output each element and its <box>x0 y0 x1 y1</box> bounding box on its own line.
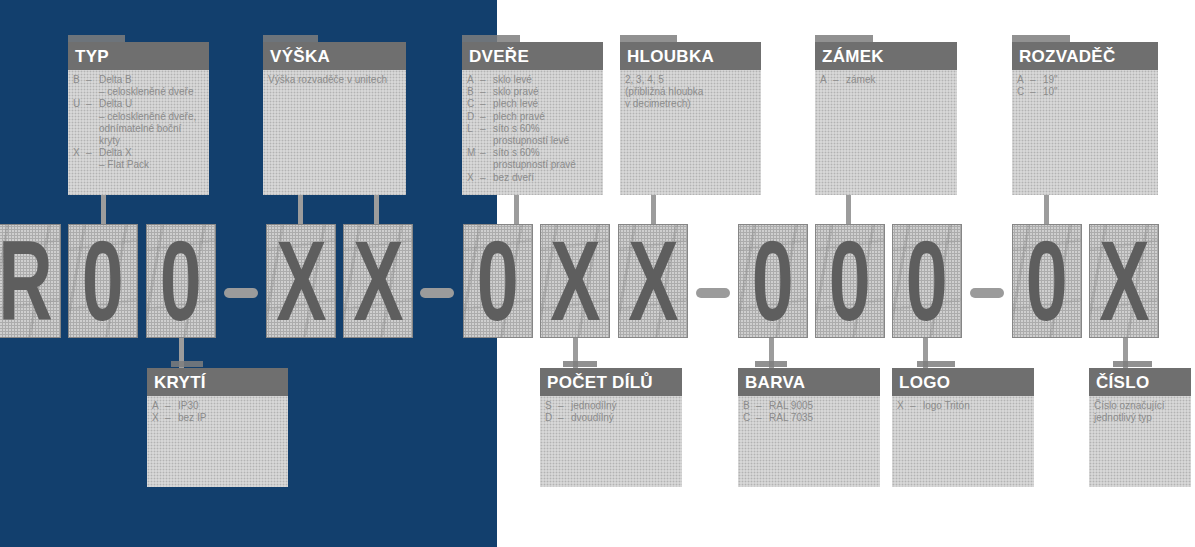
code-char-box-3: 0 <box>146 224 216 338</box>
shadow-tab <box>1113 361 1152 367</box>
code-char-glyph: X <box>276 224 326 337</box>
shadow-tab <box>815 35 873 42</box>
legend-line: odnímatelné boční <box>73 123 204 135</box>
shadow-tab <box>171 361 203 367</box>
label-title-pocet-dilu: POČET DÍLŮ <box>540 368 682 396</box>
label-box-rozvadec: ROZVADĚČ A–19"C–10" <box>1012 42 1158 195</box>
shadow-tab <box>917 361 955 367</box>
shadow-tab <box>1012 35 1070 42</box>
label-box-pocet-dilu: POČET DÍLŮ S–jednodílnýD–dvoudílný <box>540 368 682 487</box>
label-body-pocet-dilu: S–jednodílnýD–dvoudílný <box>540 396 682 487</box>
label-box-dvere: DVEŘE A–sklo levéB–sklo pravéC–plech lev… <box>462 42 603 195</box>
code-separator-dash <box>420 288 454 298</box>
legend-line: prostupností pravé <box>467 159 598 171</box>
legend-line: X–logo Tritón <box>897 400 1029 412</box>
label-title-kryti: KRYTÍ <box>147 368 288 396</box>
shadow-tab <box>563 361 597 367</box>
code-char-glyph: 0 <box>477 224 519 337</box>
label-box-barva: BARVA B–RAL 9005C–RAL 7035 <box>738 368 880 487</box>
code-char-glyph: X <box>353 224 403 337</box>
code-char-box-1: R <box>0 224 61 338</box>
label-title-rozvadec: ROZVADĚČ <box>1012 42 1158 70</box>
shadow-tab <box>620 35 677 42</box>
legend-line: C–RAL 7035 <box>743 412 875 424</box>
code-char-glyph: X <box>1099 224 1149 337</box>
legend-line: – celoskleněné dveře, <box>73 111 204 123</box>
label-body-logo: X–logo Tritón <box>892 396 1034 487</box>
shadow-tab <box>755 361 787 367</box>
label-box-cislo: ČÍSLO Číslo označujícíjednotlivý typ <box>1089 368 1191 487</box>
code-char-box-7: X <box>540 224 610 338</box>
label-box-typ: TYP B–Delta B– celoskleněné dveřeU–Delta… <box>68 42 209 195</box>
order-code-diagram: TYP B–Delta B– celoskleněné dveřeU–Delta… <box>0 0 1195 547</box>
legend-line: D–plech pravé <box>467 111 598 123</box>
code-char-box-2: 0 <box>68 224 138 338</box>
legend-line: L–síto s 60% <box>467 123 598 135</box>
label-body-zamek: A–zámek <box>815 70 957 195</box>
code-char-glyph: X <box>628 224 678 337</box>
label-title-hloubka: HLOUBKA <box>620 42 761 70</box>
label-body-vyska: Výška rozvaděče v unitech <box>263 70 406 195</box>
legend-line: S–jednodílný <box>545 400 677 412</box>
legend-line: A–IP30 <box>152 400 283 412</box>
legend-line: kryty <box>73 135 204 147</box>
legend-line: 2, 3, 4, 5 <box>625 74 756 86</box>
code-char-glyph: 0 <box>82 224 124 337</box>
code-char-box-8: X <box>618 224 688 338</box>
legend-line: prostupností levé <box>467 135 598 147</box>
label-title-typ: TYP <box>68 42 209 70</box>
code-char-box-13: X <box>1089 224 1159 338</box>
legend-line: B–Delta B <box>73 74 204 86</box>
legend-line: A–sklo levé <box>467 74 598 86</box>
code-separator-dash <box>970 288 1004 298</box>
legend-line: – celoskleněné dveře <box>73 86 204 98</box>
legend-line: X–Delta X <box>73 147 204 159</box>
code-char-box-11: 0 <box>892 224 962 338</box>
code-char-box-10: 0 <box>815 224 885 338</box>
code-char-glyph: 0 <box>829 224 871 337</box>
shadow-tab <box>263 35 318 42</box>
legend-line: Výška rozvaděče v unitech <box>268 74 401 86</box>
code-char-glyph: 0 <box>1026 224 1068 337</box>
legend-line: U–Delta U <box>73 98 204 110</box>
label-title-cislo: ČÍSLO <box>1089 368 1191 396</box>
legend-line: v decimetrech) <box>625 98 756 110</box>
legend-line: X–bez dveří <box>467 172 598 184</box>
label-box-vyska: VÝŠKA Výška rozvaděče v unitech <box>263 42 406 195</box>
code-char-box-6: 0 <box>463 224 533 338</box>
label-body-dvere: A–sklo levéB–sklo pravéC–plech levéD–ple… <box>462 70 603 195</box>
code-char-box-12: 0 <box>1012 224 1082 338</box>
label-box-logo: LOGO X–logo Tritón <box>892 368 1034 487</box>
code-char-box-5: X <box>343 224 413 338</box>
code-char-box-9: 0 <box>738 224 808 338</box>
label-box-zamek: ZÁMEK A–zámek <box>815 42 957 195</box>
label-title-vyska: VÝŠKA <box>263 42 406 70</box>
legend-line: C–10" <box>1017 86 1153 98</box>
label-title-logo: LOGO <box>892 368 1034 396</box>
label-box-kryti: KRYTÍ A–IP30X–bez IP <box>147 368 288 487</box>
legend-line: B–RAL 9005 <box>743 400 875 412</box>
legend-line: X–bez IP <box>152 412 283 424</box>
code-char-box-4: X <box>266 224 336 338</box>
label-body-cislo: Číslo označujícíjednotlivý typ <box>1089 396 1191 487</box>
code-char-glyph: 0 <box>160 224 202 337</box>
label-box-hloubka: HLOUBKA 2, 3, 4, 5(přibližná hloubkav de… <box>620 42 761 195</box>
legend-line: B–sklo pravé <box>467 86 598 98</box>
label-body-barva: B–RAL 9005C–RAL 7035 <box>738 396 880 487</box>
legend-line: Číslo označující <box>1094 400 1186 412</box>
code-char-glyph: 0 <box>906 224 948 337</box>
shadow-tab <box>462 35 520 42</box>
code-char-glyph: 0 <box>752 224 794 337</box>
label-title-zamek: ZÁMEK <box>815 42 957 70</box>
shadow-tab <box>68 35 125 42</box>
legend-line: C–plech levé <box>467 98 598 110</box>
legend-line: (přibližná hloubka <box>625 86 756 98</box>
legend-line: A–zámek <box>820 74 952 86</box>
label-body-hloubka: 2, 3, 4, 5(přibližná hloubkav decimetrec… <box>620 70 761 195</box>
legend-line: M–síto s 60% <box>467 147 598 159</box>
label-body-typ: B–Delta B– celoskleněné dveřeU–Delta U– … <box>68 70 209 195</box>
label-body-kryti: A–IP30X–bez IP <box>147 396 288 487</box>
legend-line: D–dvoudílný <box>545 412 677 424</box>
legend-line: – Flat Pack <box>73 159 204 171</box>
code-char-glyph: X <box>550 224 600 337</box>
code-separator-dash <box>696 288 730 298</box>
legend-line: jednotlivý typ <box>1094 412 1186 424</box>
code-char-glyph: R <box>0 224 53 337</box>
code-separator-dash <box>224 288 258 298</box>
legend-line: A–19" <box>1017 74 1153 86</box>
label-title-dvere: DVEŘE <box>462 42 603 70</box>
label-body-rozvadec: A–19"C–10" <box>1012 70 1158 195</box>
label-title-barva: BARVA <box>738 368 880 396</box>
